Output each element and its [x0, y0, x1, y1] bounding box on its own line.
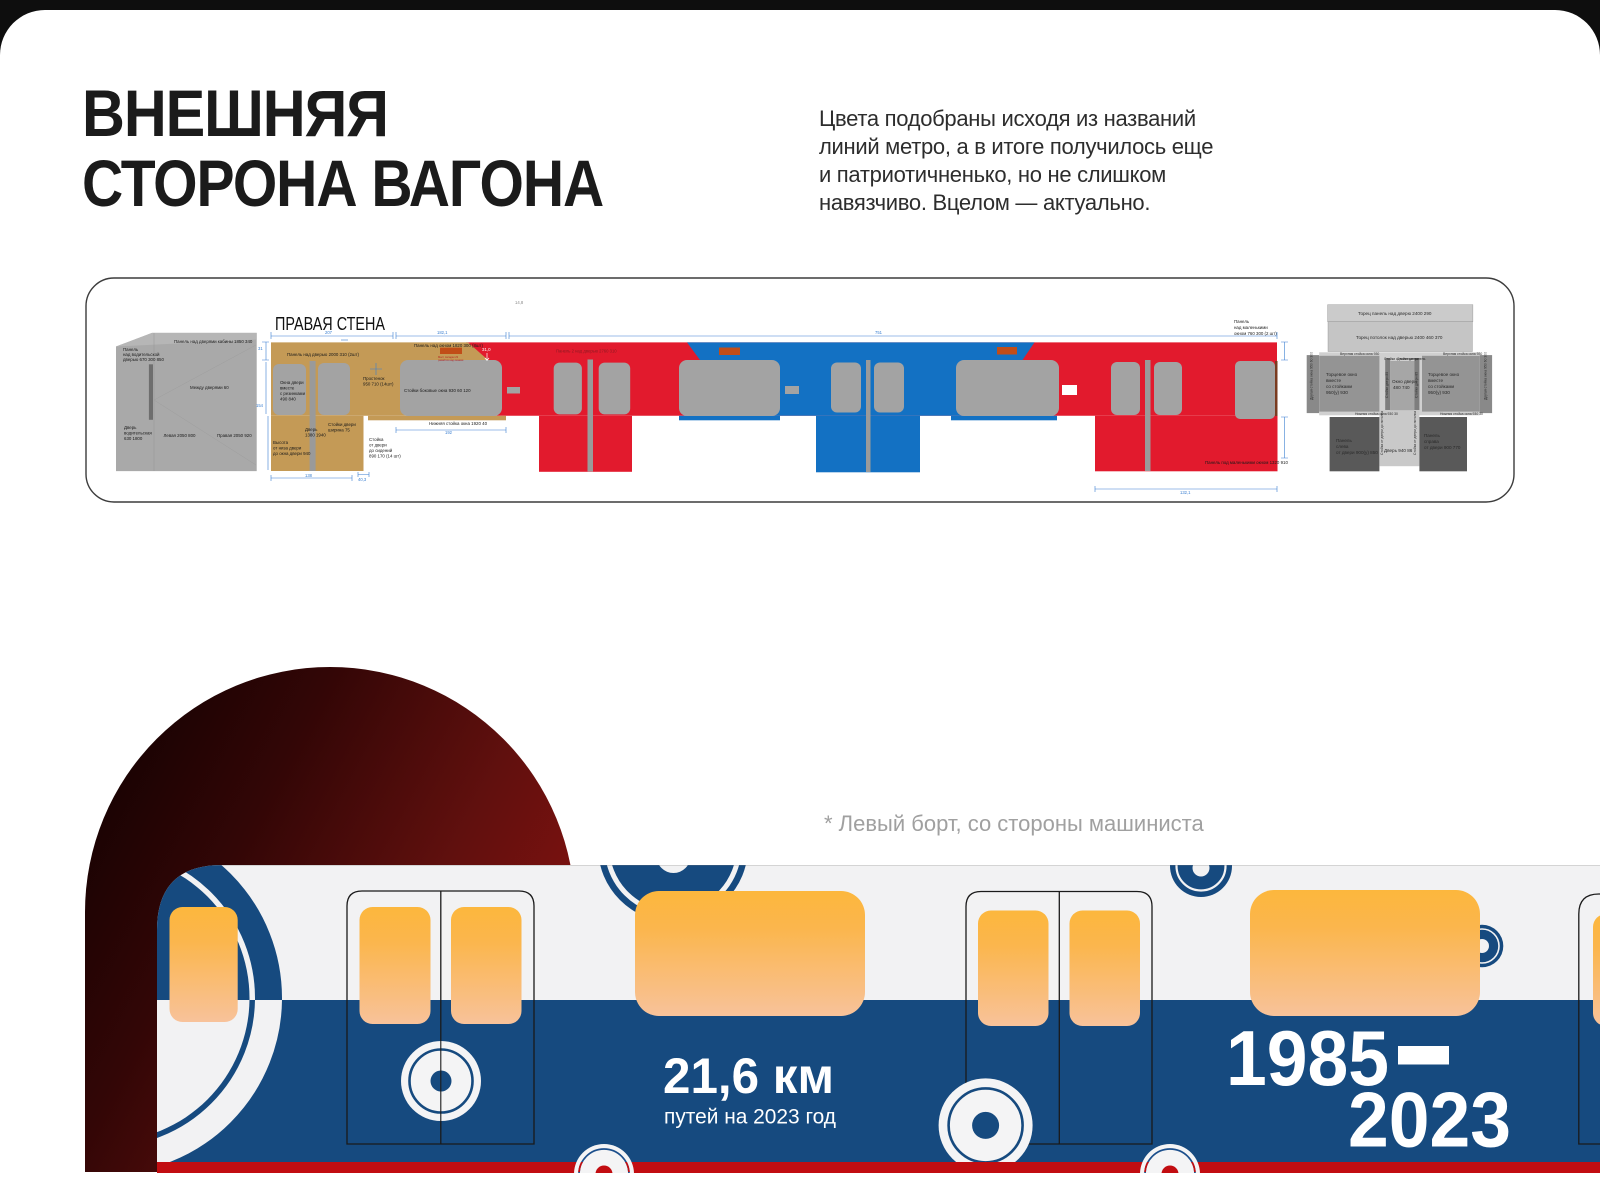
svg-text:со стойками: со стойками: [1428, 383, 1454, 389]
svg-text:разайтся над окнами: разайтся над окнами: [438, 358, 464, 362]
svg-text:Торцевое окно: Торцевое окно: [1428, 372, 1460, 377]
svg-text:Окно двери: Окно двери: [1392, 379, 1417, 384]
svg-text:490 840: 490 840: [280, 397, 296, 402]
svg-text:Нижняя стойка окна 930 30: Нижняя стойка окна 930 30: [1440, 412, 1483, 416]
svg-text:Стойки двери: Стойки двери: [328, 422, 356, 427]
svg-text:ширина 75: ширина 75: [328, 428, 350, 433]
svg-text:Панель 2 над дверью 2760 310: Панель 2 над дверью 2760 310: [556, 349, 617, 354]
svg-text:с резинками: с резинками: [280, 391, 306, 396]
svg-text:Панель: Панель: [1424, 433, 1440, 438]
svg-text:Между дверями 60: Между дверями 60: [190, 385, 229, 390]
svg-text:водительская: водительская: [124, 431, 152, 436]
svg-text:от двери: от двери: [369, 443, 387, 448]
svg-text:31: 31: [258, 346, 263, 351]
svg-text:Дверь 940 86: Дверь 940 86: [1384, 448, 1413, 453]
svg-text:Панель над окном 1820 300 (8шт: Панель над окном 1820 300 (8шт): [414, 343, 483, 348]
svg-text:Дверь: Дверь: [305, 427, 318, 432]
svg-text:138: 138: [305, 473, 313, 478]
svg-text:40,3: 40,3: [358, 477, 367, 482]
svg-text:Торец панель над дверю 2400 29: Торец панель над дверю 2400 290: [1358, 311, 1432, 316]
svg-text:до сидений: до сидений: [369, 448, 393, 453]
svg-text:вместе: вместе: [280, 386, 295, 391]
svg-text:со стойками: со стойками: [1326, 383, 1352, 389]
svg-text:Панель над дверями кабины 1850: Панель над дверями кабины 1850 340: [174, 339, 253, 344]
svg-text:Панель под маленькими окном 13: Панель под маленькими окном 1320 910: [1205, 460, 1288, 465]
svg-text:Стойка от двери до потолка: Стойка от двери до потолка: [1413, 411, 1417, 455]
svg-text:207: 207: [325, 330, 333, 335]
svg-text:21,6 км: 21,6 км: [663, 1048, 834, 1104]
svg-text:от двери 900 770: от двери 900 770: [1424, 445, 1461, 450]
svg-text:Другая стойка окна 950 60 300: Другая стойка окна 950 60 300: [1484, 352, 1488, 400]
svg-text:Стойки боковые окна 930 60 120: Стойки боковые окна 930 60 120: [404, 388, 471, 393]
svg-text:Панель над дверью 2000 310 (2ш: Панель над дверью 2000 310 (2шт): [287, 352, 360, 357]
svg-text:вместе: вместе: [1428, 378, 1443, 383]
svg-text:950(у) 930: 950(у) 930: [1326, 390, 1348, 395]
svg-text:Нижняя стойка окна 930 30: Нижняя стойка окна 930 30: [1355, 412, 1398, 416]
svg-text:2023: 2023: [1348, 1076, 1511, 1164]
svg-text:480 740: 480 740: [1393, 385, 1410, 390]
svg-text:Торец потолок над дверью 2400: Торец потолок над дверью 2400 460 370: [1356, 335, 1443, 340]
svg-text:Верхняя стойка окна 930: Верхняя стойка окна 930: [1340, 352, 1379, 356]
svg-text:630 1800: 630 1800: [124, 436, 143, 441]
svg-text:1380 1940: 1380 1940: [305, 433, 326, 438]
svg-text:от двери 900(у) 850: от двери 900(у) 850: [1336, 450, 1378, 455]
svg-text:182,1: 182,1: [437, 330, 448, 335]
svg-text:154: 154: [256, 403, 264, 408]
svg-text:Стойка: Стойка: [369, 437, 384, 442]
svg-text:Стойки двери: Стойки двери: [1397, 357, 1419, 361]
svg-text:окном 760 300 (2 шт): окном 760 300 (2 шт): [1234, 331, 1277, 336]
svg-text:Простенок: Простенок: [363, 376, 385, 381]
svg-text:слева: слева: [1336, 444, 1349, 449]
svg-text:Нижняя стойка окна 1920 40: Нижняя стойка окна 1920 40: [429, 421, 488, 426]
svg-text:Высота: Высота: [273, 440, 289, 445]
svg-text:192: 192: [445, 430, 453, 435]
svg-text:Другая стойка окна 950 60 300: Другая стойка окна 950 60 300: [1310, 352, 1314, 400]
svg-text:Левая 2050 800: Левая 2050 800: [164, 433, 197, 438]
svg-text:14,8: 14,8: [515, 300, 524, 305]
svg-text:132,1: 132,1: [1180, 490, 1191, 495]
svg-text:Стойки двери 85: Стойки двери 85: [1385, 372, 1389, 398]
svg-text:890 170 (14 шт): 890 170 (14 шт): [369, 454, 401, 459]
svg-text:751: 751: [875, 330, 883, 335]
svg-text:дверью 670 300 850: дверью 670 300 850: [123, 357, 165, 362]
svg-text:Стойка от двери до потолка: Стойка от двери до потолка: [1380, 411, 1384, 455]
svg-text:950 710 (14шт): 950 710 (14шт): [363, 382, 394, 387]
svg-text:Дверь: Дверь: [124, 425, 137, 430]
svg-text:над маленькими: над маленькими: [1234, 325, 1268, 330]
svg-text:Окна двери: Окна двери: [280, 380, 304, 385]
svg-text:Правая 2050 920: Правая 2050 920: [217, 433, 252, 438]
svg-text:путей на 2023 год: путей на 2023 год: [664, 1105, 836, 1129]
svg-text:Панель: Панель: [1336, 438, 1352, 443]
svg-text:31,0: 31,0: [482, 347, 491, 352]
svg-text:Торцевое окно: Торцевое окно: [1326, 372, 1358, 377]
svg-text:Панель: Панель: [1234, 319, 1250, 324]
svg-text:до окна двери 940: до окна двери 940: [273, 451, 311, 456]
svg-text:от низа двери: от низа двери: [273, 446, 302, 451]
svg-text:Стойки двери 85: Стойки двери 85: [1415, 372, 1419, 398]
svg-text:справа: справа: [1424, 439, 1439, 444]
svg-text:вместе: вместе: [1326, 378, 1341, 383]
svg-text:950(у) 930: 950(у) 930: [1428, 390, 1450, 395]
svg-text:Верхняя стойка окна 930: Верхняя стойка окна 930: [1443, 352, 1482, 356]
